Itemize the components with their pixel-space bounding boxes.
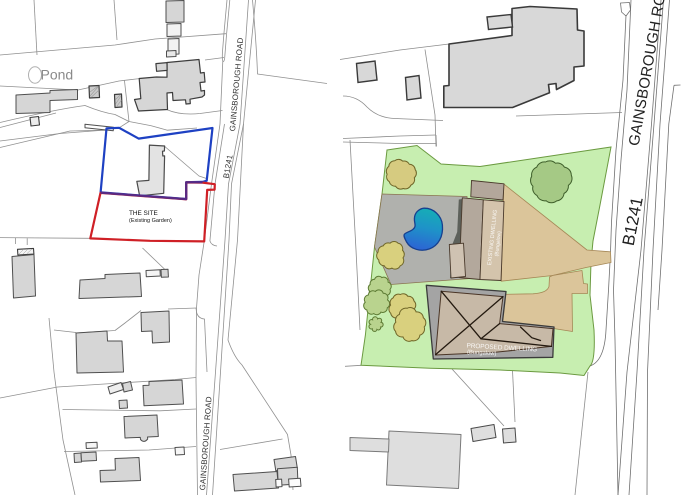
svg-text:(Existing Garden): (Existing Garden) — [129, 218, 172, 224]
svg-text:Pond: Pond — [41, 67, 74, 83]
svg-text:THE SITE: THE SITE — [129, 210, 158, 217]
